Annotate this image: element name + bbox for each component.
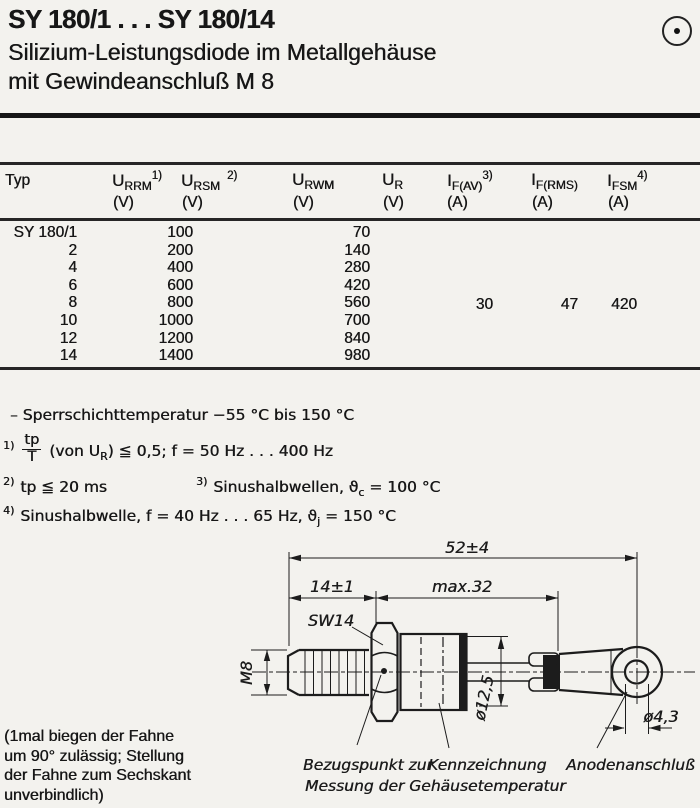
table-rule-top (0, 162, 700, 165)
table-row: 4400280 (0, 259, 700, 277)
col-header-typ: Typ (5, 172, 30, 190)
col-header-ifrms: IF(RMS) (531, 170, 578, 192)
fraction-tp-over-T: tpT (22, 433, 41, 465)
bend-note-line-1: (1mal biegen der Fahne (4, 727, 191, 747)
col-header-urwm: URWM (292, 170, 334, 192)
subtitle-line-1: Silizium-Leistungsdiode im Metallgehäuse (8, 39, 436, 66)
table-row: 141400980 (0, 347, 700, 365)
footnote-4-text: Sinushalbwelle, f = 40 Hz . . . 65 Hz, ϑ… (20, 507, 396, 525)
datasheet-page: SY 180/1 . . . SY 180/14 Silizium-Leistu… (0, 0, 700, 808)
caption-reference-point-line-1: Bezugspunkt zur (303, 756, 434, 774)
footnote-3-text: Sinushalbwellen, ϑc = 100 °C (213, 478, 440, 496)
table-rows: SY 180/110070 2200140 4400280 6600420 88… (0, 224, 700, 365)
unit-ifsm: (A) (608, 194, 629, 212)
unit-ifrms: (A) (532, 194, 553, 212)
polarity-dot (674, 28, 680, 34)
table-row: 2200140 (0, 242, 700, 260)
unit-ifav: (A) (447, 194, 468, 212)
header-rule (0, 113, 700, 118)
unit-urwm: (V) (293, 194, 314, 212)
footnote-4: 4)Sinushalbwelle, f = 40 Hz . . . 65 Hz,… (3, 504, 396, 528)
shared-value-ifsm: 420 (578, 296, 637, 314)
dim-max32-label: max.32 (432, 577, 492, 596)
footnote-1-text: (von UR) ≦ 0,5; f = 50 Hz . . . 400 Hz (49, 442, 333, 460)
caption-reference-point-line-2: Messung der Gehäusetemperatur (305, 777, 567, 795)
table-rule-header (0, 218, 700, 221)
bend-note: (1mal biegen der Fahne um 90° zulässig; … (4, 727, 191, 805)
page-title: SY 180/1 . . . SY 180/14 (8, 4, 274, 35)
sw14-label: SW14 (308, 611, 354, 630)
subtitle-line-2: mit Gewindeanschluß M 8 (8, 68, 274, 95)
footnote-3-marker: 3) (196, 475, 207, 488)
ratings-table: Typ URRM1) URSM2) URWM UR IF(AV)3) IF(RM… (0, 162, 700, 372)
dia-4-3-label: ø4,3 (642, 707, 678, 726)
footnote-4-marker: 4) (3, 504, 14, 517)
note-junction-temperature: – Sperrschichttemperatur −55 °C bis 150 … (10, 406, 354, 424)
case-temp-reference-dot (381, 668, 387, 674)
bend-note-line-2: um 90° zulässig; Stellung (4, 747, 191, 767)
caption-marking: Kennzeichnung (428, 756, 547, 774)
unit-ursm: (V) (182, 194, 203, 212)
polarity-circle-dot-icon (662, 16, 692, 46)
crimp-sleeve (543, 655, 560, 689)
footnote-2-text: tp ≦ 20 ms (20, 478, 107, 496)
col-header-urrm: URRM1) (112, 170, 162, 193)
table-rule-bottom (0, 367, 700, 370)
bend-note-line-3: der Fahne zum Sechskant (4, 766, 191, 786)
footnote-3: 3)Sinushalbwellen, ϑc = 100 °C (196, 475, 440, 499)
table-row: 121200840 (0, 330, 700, 348)
dim-14-label: 14±1 (310, 577, 354, 596)
col-header-ifav: IF(AV)3) (447, 170, 492, 193)
col-header-ifsm: IFSM4) (607, 170, 647, 193)
caption-anode-connection: Anodenanschluß (565, 756, 695, 774)
shared-value-ifav: 30 (370, 296, 493, 314)
unit-ur: (V) (383, 194, 404, 212)
table-row: 101000700 (0, 312, 700, 330)
footnote-2-marker: 2) (3, 475, 14, 488)
col-header-ur: UR (382, 170, 403, 192)
footnote-1: 1)tpT(von UR) ≦ 0,5; f = 50 Hz . . . 400… (3, 433, 333, 469)
footnote-2: 2)tp ≦ 20 ms (3, 475, 107, 496)
table-row: SY 180/110070 (0, 224, 700, 242)
shared-value-ifrms: 47 (493, 296, 578, 314)
outline-drawing: 52±4 14±1 max.32 SW14 M8 ø12,5 ø4,3 Bezu… (225, 540, 700, 808)
footnote-1-marker: 1) (3, 439, 14, 452)
unit-urrm: (V) (113, 194, 134, 212)
bend-note-line-4: unverbindlich) (4, 786, 191, 806)
table-row: 6600420 (0, 277, 700, 295)
m8-thread-label: M8 (237, 661, 256, 685)
col-header-ursm: URSM2) (181, 170, 237, 193)
dim-52-label: 52±4 (445, 540, 489, 557)
